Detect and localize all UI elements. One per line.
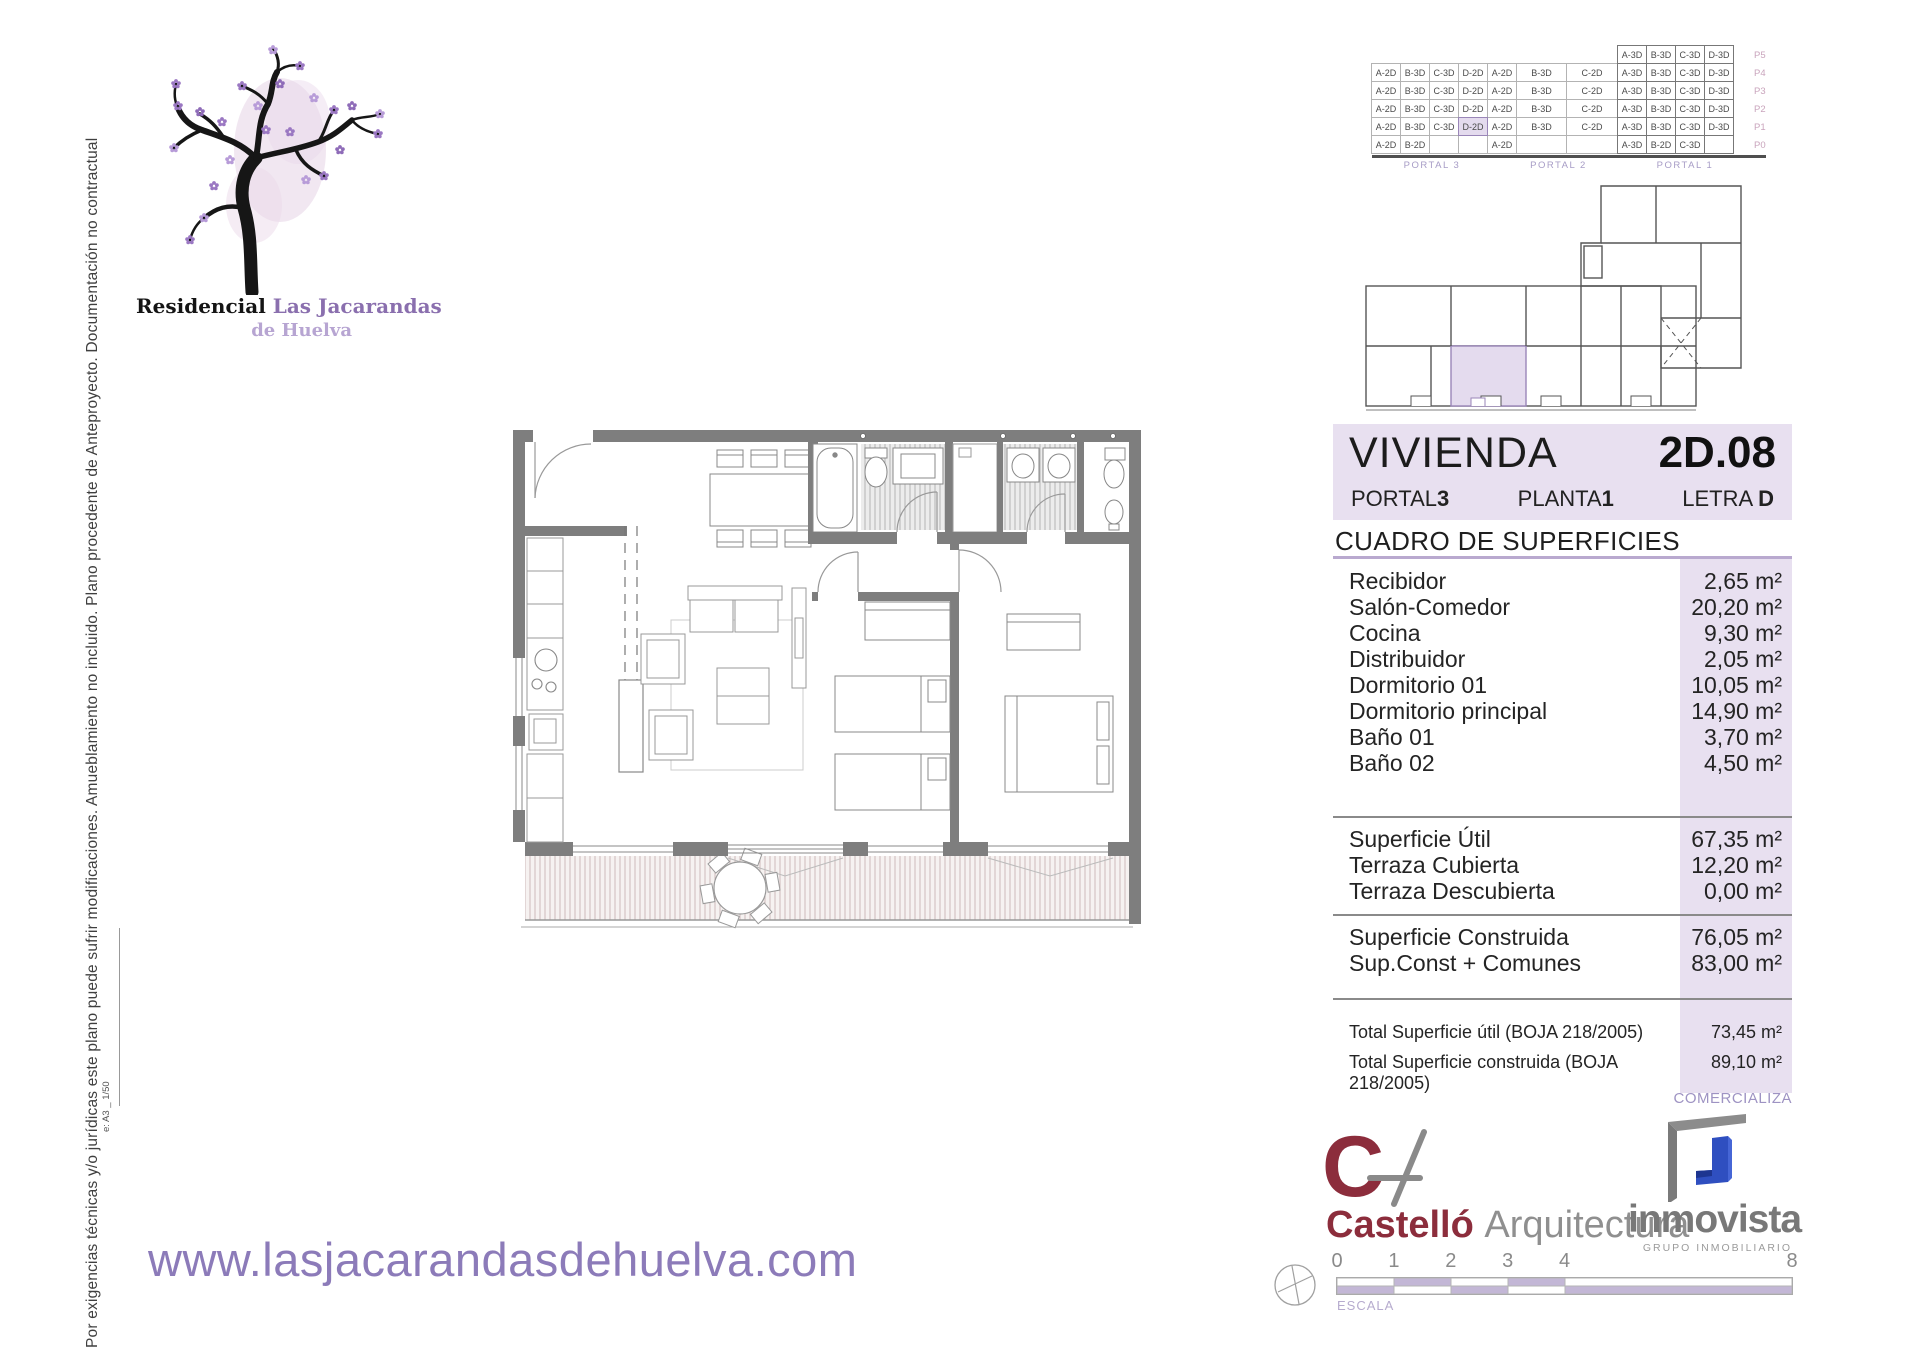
matrix-cell: B-3D: [1400, 99, 1430, 118]
surface-row: Cocina9,30 m²: [1333, 620, 1792, 646]
matrix-cell: A-3D: [1617, 135, 1647, 154]
brand-subtitle: de Huelva: [136, 320, 352, 341]
surface-label: Superficie Útil: [1333, 826, 1491, 853]
bath-02-sink: [893, 448, 943, 484]
surface-label: Salón-Comedor: [1333, 594, 1510, 621]
surfaces-title: CUADRO DE SUPERFICIES: [1335, 526, 1680, 557]
surface-value: 9,30 m²: [1680, 620, 1792, 647]
website-link[interactable]: www.lasjacarandasdehuelva.com: [148, 1232, 857, 1287]
surface-value: 76,05 m²: [1680, 924, 1792, 951]
matrix-cell: B-3D: [1646, 99, 1676, 118]
matrix-cell: B-3D: [1516, 63, 1567, 82]
matrix-cell: C-3D: [1429, 81, 1459, 100]
dining-area: [710, 450, 812, 547]
tv-unit: [792, 588, 806, 688]
matrix-cell: [1458, 135, 1488, 154]
surface-row: Distribuidor2,05 m²: [1333, 646, 1792, 672]
matrix-cell: [1516, 135, 1567, 154]
matrix-cell: [1704, 135, 1734, 154]
armchairs: [641, 634, 693, 760]
portal-group-label: PORTAL 2: [1492, 160, 1625, 171]
scalebar: [1337, 1278, 1792, 1294]
surface-value: 3,70 m²: [1680, 724, 1792, 751]
surface-value: 4,50 m²: [1680, 750, 1792, 777]
matrix-cell: [1371, 46, 1401, 64]
matrix-cell: B-3D: [1646, 81, 1676, 100]
matrix-cell: D-2D: [1458, 63, 1488, 82]
toilet: [865, 448, 887, 487]
terrace: [521, 848, 1133, 927]
matrix-cell: C-3D: [1429, 117, 1459, 136]
surface-row: Total Superficie útil (BOJA 218/2005)73,…: [1333, 1022, 1792, 1052]
separator: [1333, 998, 1792, 1000]
matrix-cell: [1458, 46, 1488, 64]
surface-label: Dormitorio 01: [1333, 672, 1487, 699]
plan-sheet: Por exigencias técnicas y/o jurídicas es…: [0, 0, 1920, 1358]
matrix-cell: D-2D: [1458, 117, 1488, 136]
matrix-cell: A-3D: [1617, 81, 1647, 100]
matrix-cell: C-3D: [1429, 63, 1459, 82]
matrix-cell: B-3D: [1400, 63, 1430, 82]
matrix-cell: B-3D: [1516, 117, 1567, 136]
surface-value: 83,00 m²: [1680, 950, 1792, 977]
surface-value: 14,90 m²: [1680, 698, 1792, 725]
matrix-cell: A-3D: [1617, 45, 1647, 64]
surface-row: Baño 013,70 m²: [1333, 724, 1792, 750]
matrix-cell: [1429, 46, 1459, 64]
surface-value: 2,65 m²: [1680, 568, 1792, 595]
scalebar-segment: [1508, 1286, 1565, 1294]
unit-matrix: A-3DB-3DC-3DD-3DA-2DB-3DC-3DD-2DA-2DB-3D…: [1372, 46, 1734, 154]
matrix-cell: B-3D: [1516, 99, 1567, 118]
surface-value: 67,35 m²: [1680, 826, 1792, 853]
surface-label: Distribuidor: [1333, 646, 1465, 673]
stairwell-cross: [1661, 318, 1701, 368]
separator: [1333, 914, 1792, 916]
matrix-row: A-2DB-3DC-3DD-2DA-2DB-3DC-2DA-3DB-3DC-3D…: [1372, 100, 1734, 118]
matrix-cell: B-2D: [1646, 135, 1676, 154]
scalebar-tick: 2: [1445, 1250, 1456, 1273]
matrix-cell: A-2D: [1371, 135, 1401, 154]
surface-row: Salón-Comedor20,20 m²: [1333, 594, 1792, 620]
matrix-cell: A-3D: [1617, 99, 1647, 118]
portal-group-label: PORTAL 1: [1625, 160, 1745, 171]
matrix-cell: A-2D: [1487, 117, 1517, 136]
floor-field: PLANTA1: [1518, 486, 1614, 512]
floor-label: P1: [1754, 118, 1766, 136]
separator: [1333, 816, 1792, 818]
matrix-cell: A-2D: [1487, 135, 1517, 154]
svg-text:C: C: [1322, 1124, 1384, 1208]
matrix-cell: D-3D: [1704, 99, 1734, 118]
letter-field: LETRA D: [1682, 486, 1774, 512]
bedroom-01: [835, 602, 950, 810]
scalebar-segment: [1565, 1286, 1793, 1294]
surface-row: Terraza Descubierta0,00 m²: [1333, 878, 1792, 904]
matrix-cell: C-3D: [1429, 99, 1459, 118]
matrix-cell: C-3D: [1675, 81, 1705, 100]
surface-row: Recibidor2,65 m²: [1333, 568, 1792, 594]
matrix-cell: A-2D: [1371, 99, 1401, 118]
matrix-cell: A-2D: [1371, 63, 1401, 82]
floor-label: P5: [1754, 46, 1766, 64]
matrix-cell: C-3D: [1675, 45, 1705, 64]
matrix-cell: [1429, 135, 1459, 154]
matrix-cell: B-3D: [1646, 45, 1676, 64]
surface-row: Superficie Construida76,05 m²: [1333, 924, 1792, 950]
surface-label: Baño 01: [1333, 724, 1435, 751]
matrix-cell: C-2D: [1566, 117, 1618, 136]
matrix-cell: A-2D: [1371, 117, 1401, 136]
scalebar-numbers: 012348: [1337, 1250, 1792, 1272]
surface-label: Total Superficie construida (BOJA 218/20…: [1333, 1052, 1685, 1094]
scalebar-segment: [1394, 1278, 1451, 1286]
floor-plan: [513, 428, 1143, 933]
bathtub: [813, 444, 857, 532]
surface-row: Terraza Cubierta12,20 m²: [1333, 852, 1792, 878]
scalebar-tick: 0: [1331, 1250, 1342, 1273]
matrix-cell: C-3D: [1675, 135, 1705, 154]
scalebar-tick: 4: [1559, 1250, 1570, 1273]
scalebar-tick: 8: [1786, 1250, 1797, 1273]
bedroom-principal: [1005, 614, 1113, 792]
unit-header-title: VIVIENDA: [1349, 429, 1558, 478]
matrix-cell: A-2D: [1487, 99, 1517, 118]
brand-title: Las Jacarandas: [273, 294, 442, 318]
matrix-cell: [1400, 46, 1430, 64]
matrix-cell: [1487, 46, 1517, 64]
surface-row: Dormitorio 0110,05 m²: [1333, 672, 1792, 698]
surface-label: Terraza Cubierta: [1333, 852, 1519, 879]
scalebar-segment: [1451, 1278, 1508, 1286]
matrix-cell: A-2D: [1487, 63, 1517, 82]
matrix-cell: B-3D: [1646, 63, 1676, 82]
scalebar-segment: [1508, 1278, 1565, 1286]
architect-name: Castelló: [1326, 1204, 1484, 1246]
surface-row: Total Superficie construida (BOJA 218/20…: [1333, 1052, 1792, 1082]
floor-label: P0: [1754, 136, 1766, 154]
surface-label: Recibidor: [1333, 568, 1446, 595]
floor-label: P2: [1754, 100, 1766, 118]
compass-icon: [1272, 1262, 1318, 1308]
surface-value: 10,05 m²: [1680, 672, 1792, 699]
matrix-cell: A-2D: [1371, 81, 1401, 100]
matrix-cell: [1566, 46, 1618, 64]
built-table: Superficie Construida76,05 m²Sup.Const +…: [1333, 924, 1792, 976]
matrix-cell: C-3D: [1675, 117, 1705, 136]
matrix-cell: C-3D: [1675, 63, 1705, 82]
matrix-cell: A-3D: [1617, 63, 1647, 82]
matrix-cell: B-3D: [1400, 81, 1430, 100]
matrix-row: A-2DB-3DC-3DD-2DA-2DB-3DC-2DA-3DB-3DC-3D…: [1372, 82, 1734, 100]
scalebar-segment: [1337, 1278, 1394, 1286]
surface-row: Superficie Útil67,35 m²: [1333, 826, 1792, 852]
matrix-row: A-2DB-3DC-3DD-2DA-2DB-3DC-2DA-3DB-3DC-3D…: [1372, 118, 1734, 136]
column: [619, 680, 643, 772]
matrix-baseline: [1372, 155, 1766, 158]
marketer-wordmark: inmovista: [1628, 1198, 1801, 1242]
matrix-row: A-2DB-2DA-2DA-3DB-2DC-3D: [1372, 136, 1734, 154]
surface-label: Terraza Descubierta: [1333, 878, 1555, 905]
sofa: [688, 586, 782, 632]
plan-scale-code: e: A3 _ 1/50: [101, 1012, 112, 1132]
surface-label: Cocina: [1333, 620, 1421, 647]
scalebar-segment: [1394, 1286, 1451, 1294]
matrix-cell: D-3D: [1704, 45, 1734, 64]
scalebar-tick: 1: [1388, 1250, 1399, 1273]
scalebar-segment: [1565, 1278, 1793, 1286]
matrix-cell: D-2D: [1458, 81, 1488, 100]
portal-field: PORTAL3: [1351, 486, 1449, 512]
surface-value: 12,20 m²: [1680, 852, 1792, 879]
brand-name: Residencial Las Jacarandas: [136, 294, 366, 318]
floor-label: P4: [1754, 64, 1766, 82]
surface-label: Total Superficie útil (BOJA 218/2005): [1333, 1022, 1643, 1043]
scalebar-segment: [1337, 1286, 1394, 1294]
matrix-cell: B-3D: [1400, 117, 1430, 136]
matrix-row: A-2DB-3DC-3DD-2DA-2DB-3DC-2DA-3DB-3DC-3D…: [1372, 64, 1734, 82]
surface-value: 0,00 m²: [1680, 878, 1792, 905]
disclaimer-vertical-text: Por exigencias técnicas y/o jurídicas es…: [84, 108, 102, 1348]
unit-number: 2D.08: [1659, 428, 1776, 478]
entry-door: [535, 442, 591, 498]
matrix-cell: A-2D: [1487, 81, 1517, 100]
matrix-cell: [1566, 135, 1618, 154]
matrix-cell: D-3D: [1704, 81, 1734, 100]
floor-label: P3: [1754, 82, 1766, 100]
surface-row: Baño 024,50 m²: [1333, 750, 1792, 776]
matrix-cell: D-2D: [1458, 99, 1488, 118]
inmovista-icon: [1660, 1110, 1754, 1202]
matrix-cell: C-2D: [1566, 81, 1618, 100]
bathrooms: [808, 442, 1129, 544]
brand-prefix: Residencial: [136, 294, 273, 318]
wc-bidet: [1104, 448, 1125, 530]
living-room: [641, 586, 806, 770]
matrix-cell: A-3D: [1617, 117, 1647, 136]
matrix-cell: C-3D: [1675, 99, 1705, 118]
bedroom-doors: [818, 550, 1001, 592]
kitchen: [525, 526, 643, 842]
surface-label: Dormitorio principal: [1333, 698, 1547, 725]
building-key-plan: [1356, 178, 1748, 416]
margin-rule: [119, 928, 120, 1106]
balcony-notches: [1411, 396, 1651, 406]
scalebar-segment: [1451, 1286, 1508, 1294]
surface-label: Sup.Const + Comunes: [1333, 950, 1581, 977]
surface-label: Superficie Construida: [1333, 924, 1569, 951]
matrix-cell: C-2D: [1566, 99, 1618, 118]
unit-header-box: VIVIENDA 2D.08 PORTAL3 PLANTA1 LETRA D: [1333, 424, 1792, 520]
matrix-cell: C-2D: [1566, 63, 1618, 82]
jacaranda-tree-logo: [130, 40, 395, 295]
surface-value: 89,10 m²: [1685, 1052, 1792, 1073]
surface-row: Dormitorio principal14,90 m²: [1333, 698, 1792, 724]
floor-labels: P5P4P3P2P1P0: [1754, 46, 1766, 154]
scalebar-label: ESCALA: [1337, 1298, 1394, 1313]
matrix-cell: D-3D: [1704, 117, 1734, 136]
surface-row: Sup.Const + Comunes83,00 m²: [1333, 950, 1792, 976]
shower-closet: [953, 444, 997, 532]
portal-group-label: PORTAL 3: [1372, 160, 1492, 171]
commercializes-label: COMERCIALIZA: [1333, 1090, 1792, 1107]
matrix-cell: D-3D: [1704, 63, 1734, 82]
rooms-table: Recibidor2,65 m²Salón-Comedor20,20 m²Coc…: [1333, 568, 1792, 776]
matrix-cell: [1516, 46, 1567, 64]
open-plan-divider: [625, 526, 637, 680]
matrix-cell: B-3D: [1516, 81, 1567, 100]
scalebar-tick: 3: [1502, 1250, 1513, 1273]
surface-value: 73,45 m²: [1680, 1022, 1792, 1043]
totals-table: Total Superficie útil (BOJA 218/2005)73,…: [1333, 1022, 1792, 1082]
matrix-cell: B-2D: [1400, 135, 1430, 154]
bedrooms: [812, 544, 1113, 842]
matrix-row: A-3DB-3DC-3DD-3D: [1372, 46, 1734, 64]
matrix-cell: B-3D: [1646, 117, 1676, 136]
surface-value: 2,05 m²: [1680, 646, 1792, 673]
surface-label: Baño 02: [1333, 750, 1435, 777]
castello-arquitectura-icon: C: [1322, 1124, 1442, 1208]
subtotals-table: Superficie Útil67,35 m²Terraza Cubierta1…: [1333, 826, 1792, 904]
surface-value: 20,20 m²: [1680, 594, 1792, 621]
